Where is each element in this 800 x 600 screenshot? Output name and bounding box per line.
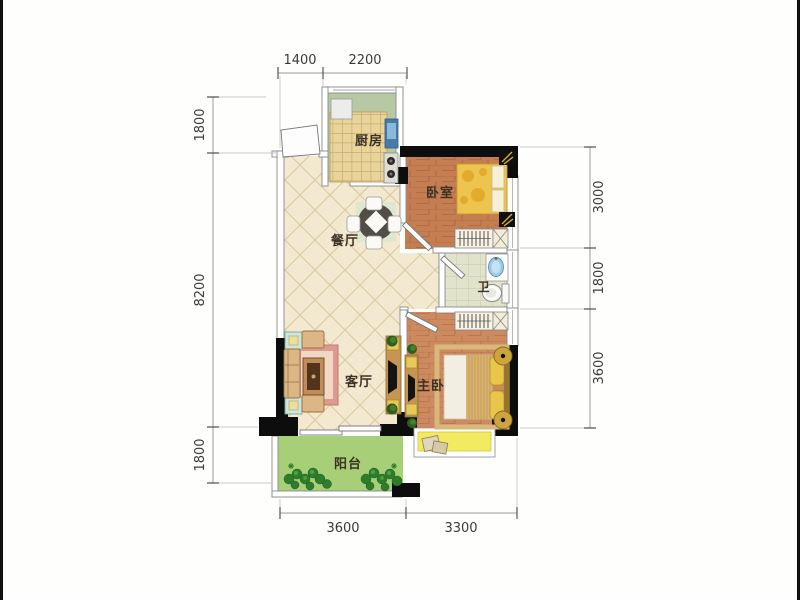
kitchen-label: 厨房 — [355, 133, 383, 149]
dim-left-1: 1800 — [193, 108, 208, 141]
master-wardrobe-icon — [455, 312, 508, 330]
dim-right-1: 3000 — [592, 180, 607, 213]
master-label: 主卧 — [417, 378, 445, 394]
fridge-icon — [331, 99, 352, 119]
coffee-table-icon — [303, 358, 324, 395]
master-bay-window — [414, 428, 495, 457]
bed-icon — [457, 164, 507, 214]
floor-plan-drawing: 1400 2200 1800 8200 1800 3000 1800 3600 … — [0, 0, 800, 600]
left-border-bar — [0, 0, 3, 600]
dim-right-3: 3600 — [592, 351, 607, 384]
windows — [507, 176, 518, 346]
bathroom-sink-icon — [486, 254, 508, 281]
balcony-label: 阳台 — [334, 456, 362, 472]
bath-label: 卫 — [477, 280, 490, 294]
wardrobe-icon — [455, 229, 508, 248]
tv-stand-icon — [386, 336, 401, 414]
entry-door-icon — [281, 125, 320, 157]
dim-right-2: 1800 — [592, 261, 607, 294]
dim-bottom-1: 3600 — [326, 521, 359, 536]
corridor-floor — [400, 253, 441, 309]
bathroom-furniture — [483, 254, 510, 303]
dim-left-3: 1800 — [193, 438, 208, 471]
living-label: 客厅 — [345, 374, 373, 390]
bedroom-label: 卧室 — [426, 185, 454, 201]
floor-plan-page: 1400 2200 1800 8200 1800 3000 1800 3600 … — [0, 0, 800, 600]
dim-left-2: 8200 — [193, 273, 208, 306]
stove-icon — [384, 153, 398, 183]
dim-top-1: 1400 — [283, 53, 316, 68]
dining-label: 餐厅 — [330, 233, 359, 249]
dim-bottom-2: 3300 — [444, 521, 477, 536]
kitchen-sink-icon — [385, 119, 398, 148]
dim-top-2: 2200 — [348, 53, 381, 68]
bedroom-furniture — [455, 150, 515, 248]
